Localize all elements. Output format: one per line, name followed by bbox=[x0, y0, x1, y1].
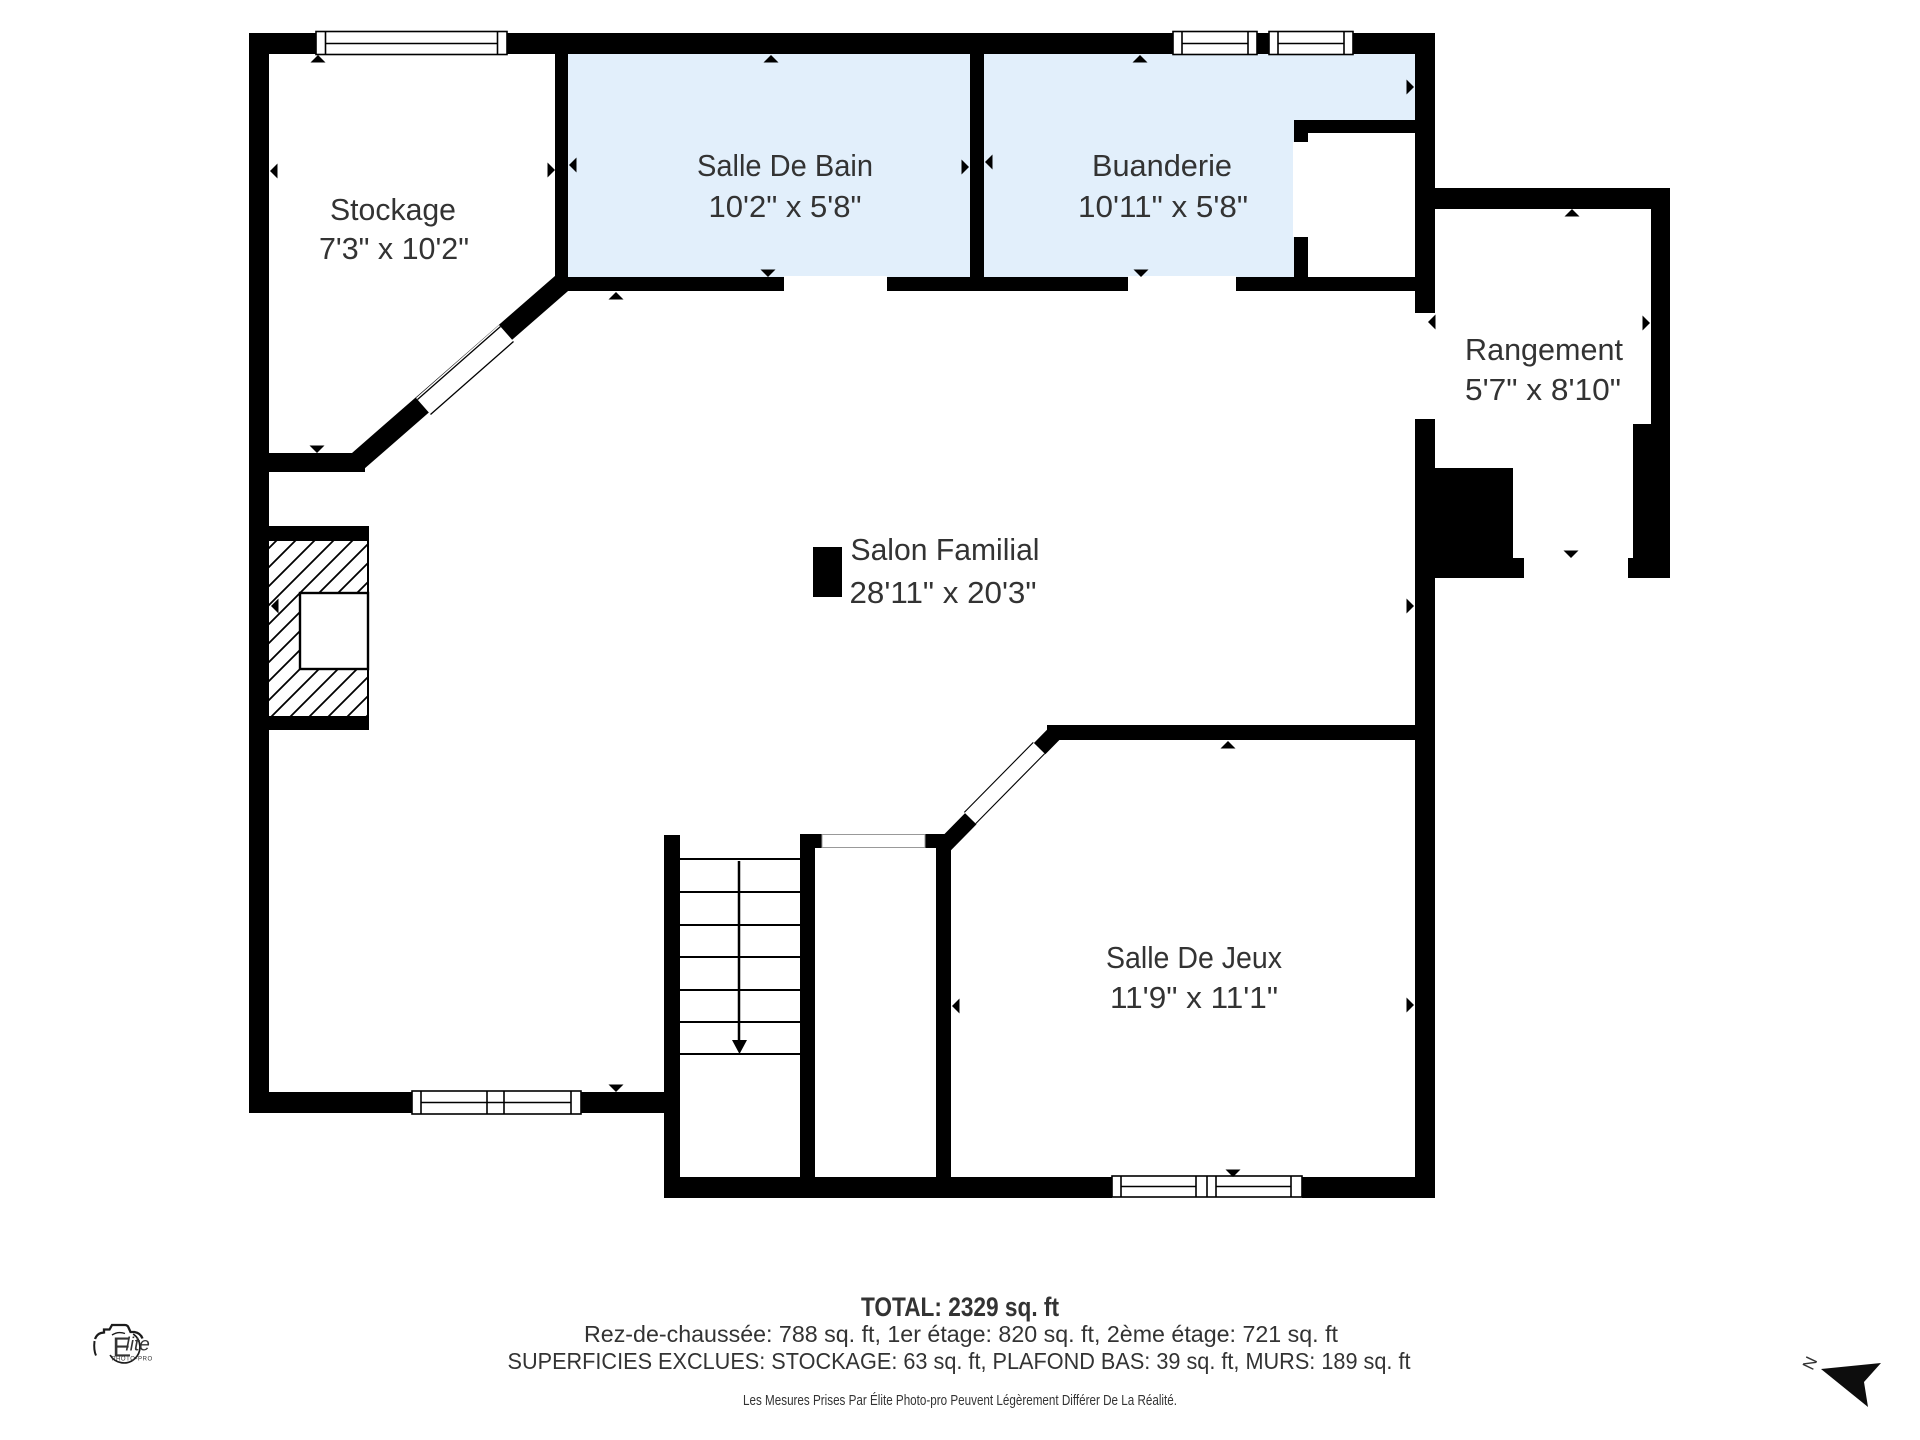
svg-text:lite: lite bbox=[126, 1335, 150, 1356]
svg-text:Buanderie: Buanderie bbox=[1092, 148, 1232, 183]
svg-text:Salon Familial: Salon Familial bbox=[851, 532, 1040, 567]
svg-text:28'11" x 20'3": 28'11" x 20'3" bbox=[850, 575, 1037, 610]
svg-text:Les Mesures Prises Par Élite P: Les Mesures Prises Par Élite Photo-pro P… bbox=[743, 1392, 1177, 1409]
svg-text:TOTAL: 2329 sq. ft: TOTAL: 2329 sq. ft bbox=[861, 1292, 1059, 1322]
svg-text:7'3" x 10'2": 7'3" x 10'2" bbox=[319, 231, 469, 266]
svg-text:Salle De Jeux: Salle De Jeux bbox=[1106, 940, 1282, 975]
svg-text:Salle De Bain: Salle De Bain bbox=[697, 148, 873, 183]
svg-text:Rangement: Rangement bbox=[1465, 332, 1623, 367]
svg-text:PHOTO-PRO: PHOTO-PRO bbox=[112, 1357, 153, 1363]
svg-text:5'7" x 8'10": 5'7" x 8'10" bbox=[1465, 372, 1621, 407]
svg-text:10'11" x 5'8": 10'11" x 5'8" bbox=[1078, 189, 1248, 224]
svg-text:Stockage: Stockage bbox=[330, 192, 456, 227]
svg-text:11'9" x 11'1": 11'9" x 11'1" bbox=[1110, 980, 1278, 1015]
svg-text:Rez-de-chaussée: 788 sq. ft, 1: Rez-de-chaussée: 788 sq. ft, 1er étage: … bbox=[584, 1321, 1338, 1347]
svg-text:SUPERFICIES EXCLUES: STOCKAGE:: SUPERFICIES EXCLUES: STOCKAGE: 63 sq. ft… bbox=[508, 1348, 1411, 1374]
svg-text:10'2" x 5'8": 10'2" x 5'8" bbox=[709, 189, 862, 224]
